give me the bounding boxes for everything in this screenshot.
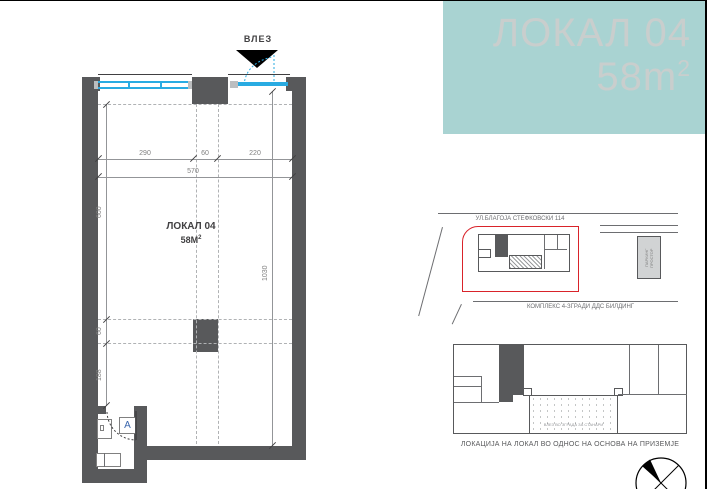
wall-top-column xyxy=(192,77,228,104)
floorplan-unit-label: ЛОКАЛ 04 xyxy=(148,221,234,232)
dim-height-3: 188 xyxy=(96,354,103,396)
ground-unit-highlight xyxy=(499,345,524,395)
ground-plan: ВЛЕЗ ВО ЗГРАДА ЗА СТАНАРИ xyxy=(453,344,687,434)
site-road-edge-2 xyxy=(452,304,462,324)
wall-bathroom-bottom xyxy=(82,469,147,483)
window-end-cap-left xyxy=(94,81,98,89)
wall-left xyxy=(82,77,98,483)
site-complex-label: КОМПЛЕКС 4-ЗГРАДИ ДДС БИЛДИНГ xyxy=(498,304,663,310)
entrance-label: ВЛЕЗ xyxy=(234,34,282,44)
dim-width-1: 290 xyxy=(120,150,170,157)
dim-height-1: 600 xyxy=(96,189,103,235)
site-bottom-line xyxy=(473,301,678,302)
unit-title-panel: ЛОКАЛ 04 58m2 xyxy=(443,1,705,134)
bathroom-door-swing-icon xyxy=(103,407,141,445)
site-terrace-hatch xyxy=(509,255,542,269)
toilet-fixture xyxy=(96,453,121,467)
ground-wall-line-3 xyxy=(481,376,482,402)
dim-width-3: 220 xyxy=(230,150,280,157)
ground-entrance-note: ВЛЕЗ ВО ЗГРАДА ЗА СТАНАРИ xyxy=(529,422,618,427)
dim-line-width-segments xyxy=(98,159,292,160)
window-mullion-2 xyxy=(160,81,162,89)
site-inner-wall-1 xyxy=(544,235,545,269)
floorplan-unit-area-exponent: 2 xyxy=(198,235,201,241)
unit-area: 58m2 xyxy=(443,55,691,99)
dim-line-width-total xyxy=(98,177,292,178)
ground-terrace-area xyxy=(529,395,618,434)
site-building-footprint xyxy=(478,234,570,272)
wall-bottom-main xyxy=(147,446,306,460)
north-arrow-icon xyxy=(633,453,689,489)
dim-width-2: 60 xyxy=(193,150,217,157)
site-sidewalk-line-1 xyxy=(600,225,678,226)
ground-wall-line-6 xyxy=(629,345,630,394)
dim-line-height-right xyxy=(272,91,273,446)
unit-title: ЛОКАЛ 04 xyxy=(443,11,691,55)
axis-line-horizontal-mid1 xyxy=(98,319,292,320)
ground-wall-line-7 xyxy=(658,345,659,394)
drawing-sheet: ЛОКАЛ 04 58m2 ВЛЕЗ 290 xyxy=(0,0,707,489)
entrance-arrow-icon xyxy=(228,47,290,89)
ground-wall-line-1 xyxy=(454,376,481,377)
site-inner-wall-2 xyxy=(557,235,558,249)
ground-terrace-notch-left xyxy=(523,388,532,396)
floorplan-unit-area-value: 58М xyxy=(181,235,199,245)
unit-area-exponent: 2 xyxy=(677,55,691,81)
toilet-divider-line xyxy=(104,453,105,467)
dim-height-2: 60 xyxy=(96,320,103,342)
site-road-edge-1 xyxy=(418,227,443,316)
ground-plan-caption: ЛОКАЦИЈА НА ЛОКАЛ ВО ОДНОС НА ОСНОВА НА … xyxy=(448,441,692,448)
site-inner-room xyxy=(479,249,491,258)
dim-line-height-left xyxy=(106,104,107,406)
ground-wall-line-2 xyxy=(454,386,481,387)
axis-line-horizontal-top xyxy=(98,104,292,105)
axis-line-horizontal-mid2 xyxy=(98,343,292,344)
dim-height-total: 1030 xyxy=(262,251,269,295)
unit-area-value: 58m xyxy=(596,55,677,99)
site-inner-wall-3 xyxy=(544,249,567,250)
window-mullion-1 xyxy=(128,81,130,89)
site-sidewalk-line-2 xyxy=(600,232,678,233)
site-street-label: УЛ.БЛАГОЈА СТЕФКОВСКИ 114 xyxy=(455,216,585,222)
ground-unit-step xyxy=(499,395,513,402)
site-parking-block: ПАРКИНГ ПРОСТОР xyxy=(637,236,661,279)
site-unit-highlight xyxy=(495,235,508,257)
site-street-line xyxy=(438,213,678,214)
ground-wall-line-5 xyxy=(618,394,687,395)
dim-width-total: 570 xyxy=(168,168,218,175)
ground-wall-line-4 xyxy=(454,402,499,403)
window-strip xyxy=(98,81,192,89)
floorplan-unit-area: 58М2 xyxy=(148,235,234,245)
wall-right xyxy=(292,77,306,460)
site-parking-label: ПАРКИНГ ПРОСТОР xyxy=(644,239,654,277)
window-end-cap-right xyxy=(188,81,192,89)
window-lintel-line-left xyxy=(98,74,192,75)
